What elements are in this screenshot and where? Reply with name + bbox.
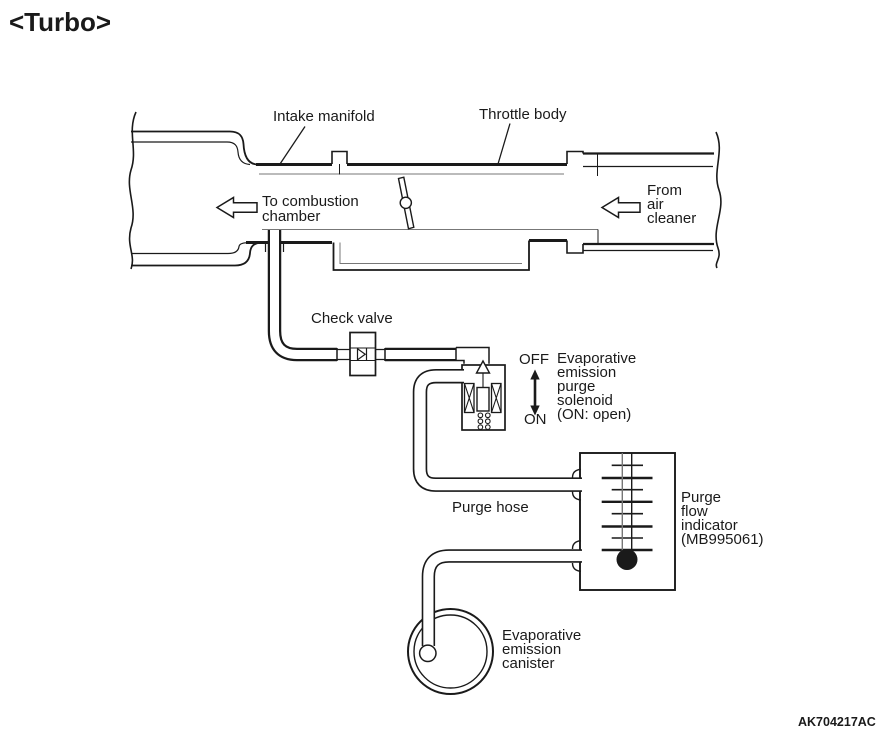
from-air-cleaner-arrow-icon (602, 198, 640, 218)
top-flange-notch-right (567, 152, 583, 165)
label-intake-manifold: Intake manifold (273, 109, 375, 124)
canister-nozzle (420, 645, 436, 661)
label-solenoid-off: OFF (519, 352, 549, 367)
page-title: <Turbo> (9, 7, 111, 38)
evap-emission-system-diagram (0, 0, 886, 742)
diagram-page: <Turbo> Intake manifold Throttle body To… (0, 0, 886, 742)
throttle-valve (399, 177, 414, 229)
label-check-valve: Check valve (311, 311, 393, 326)
off-on-arrow-icon (530, 370, 539, 416)
throttle-body-leader (498, 124, 510, 165)
label-evap-canister: Evaporative emission canister (502, 629, 581, 671)
purge-flow-indicator-drawing (580, 453, 675, 590)
intake-manifold-leader (280, 127, 305, 165)
label-purge-flow-indicator: Purge flow indicator (MB995061) (681, 491, 764, 547)
label-from-air-cleaner: From air cleaner (647, 184, 696, 226)
figure-code: AK704217AC (798, 715, 876, 729)
purge-solenoid-drawing (462, 361, 505, 430)
label-solenoid-on: ON (524, 412, 547, 427)
label-to-combustion-chamber: To combustion chamber (262, 194, 359, 224)
intake-duct-drawing (129, 112, 721, 270)
top-flange-notch-left (332, 152, 347, 165)
throttle-body-housing (334, 241, 530, 271)
check-valve-piping (266, 230, 490, 376)
label-purge-solenoid: Evaporative emission purge solenoid (ON:… (557, 352, 636, 422)
indicator-float-ball (617, 549, 638, 570)
bottom-flange-notch (567, 241, 583, 254)
to-combustion-arrow-icon (217, 198, 257, 218)
check-valve-body (350, 333, 376, 376)
label-throttle-body: Throttle body (479, 107, 567, 122)
left-break-line (129, 112, 136, 269)
label-purge-hose: Purge hose (452, 500, 529, 515)
right-break-line (716, 132, 721, 268)
